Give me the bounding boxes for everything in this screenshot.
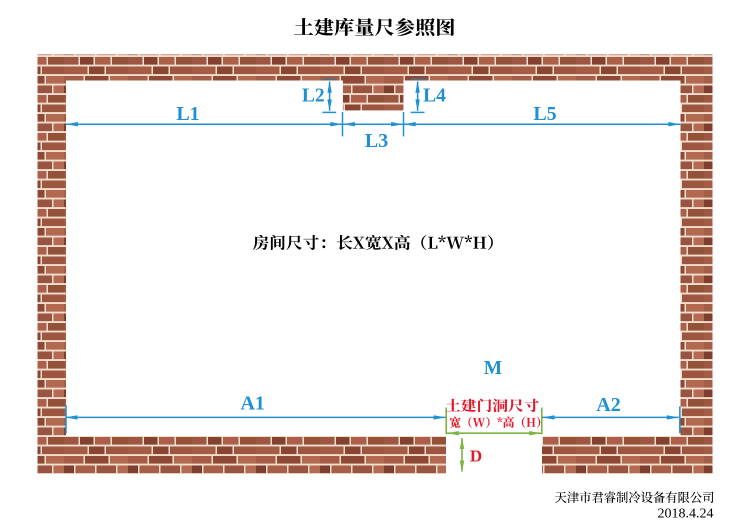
- svg-text:L2: L2: [302, 85, 325, 106]
- svg-text:L5: L5: [533, 103, 556, 125]
- svg-text:L1: L1: [176, 103, 199, 125]
- svg-text:A2: A2: [596, 394, 620, 416]
- svg-text:L3: L3: [365, 130, 388, 152]
- svg-text:A1: A1: [240, 393, 264, 415]
- svg-text:2018.4.24: 2018.4.24: [658, 506, 714, 521]
- svg-text:D: D: [470, 447, 482, 466]
- svg-text:M: M: [484, 358, 502, 379]
- svg-text:L4: L4: [423, 85, 446, 106]
